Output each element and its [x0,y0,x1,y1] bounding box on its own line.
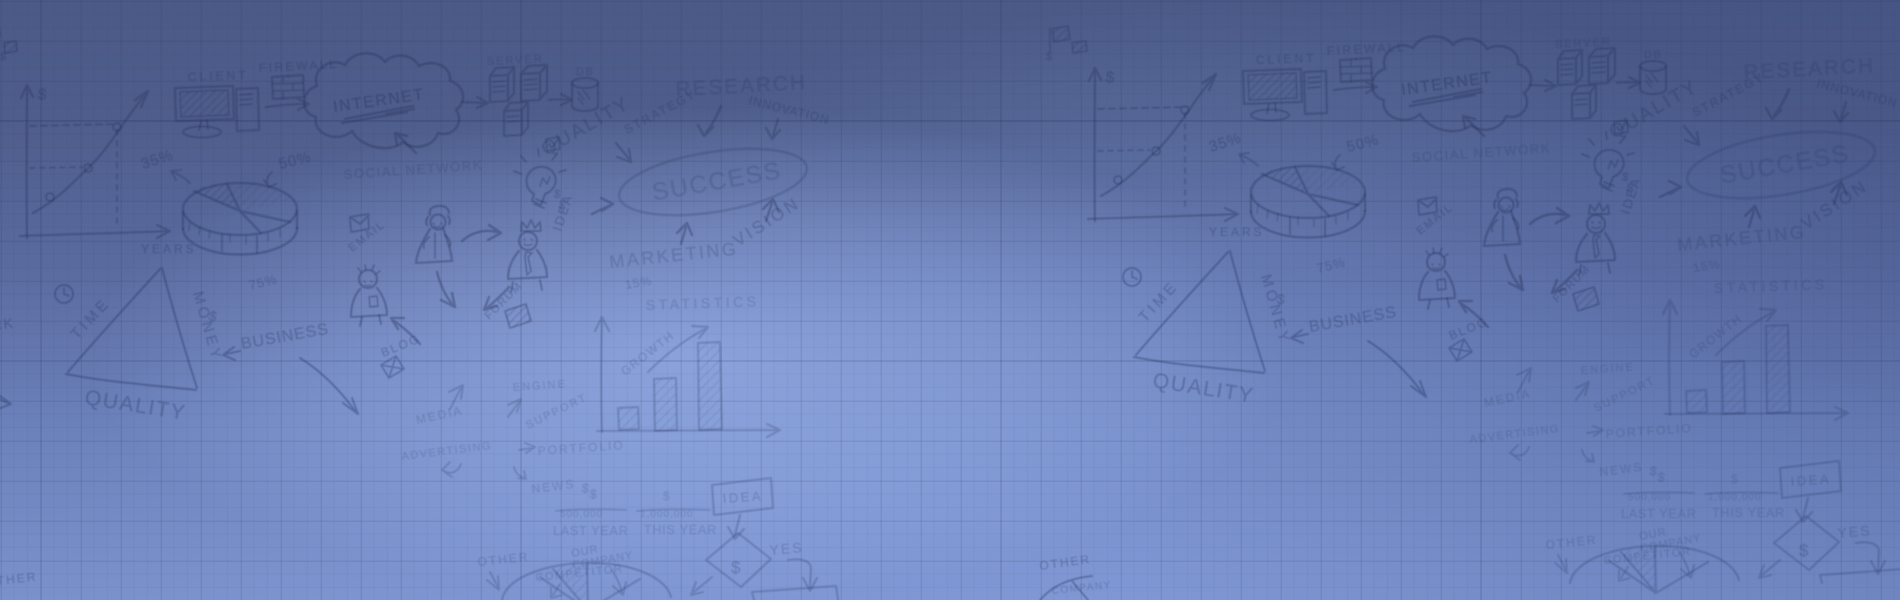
svg-text:$: $ [0,51,6,63]
svg-text:RK: RK [0,315,16,333]
